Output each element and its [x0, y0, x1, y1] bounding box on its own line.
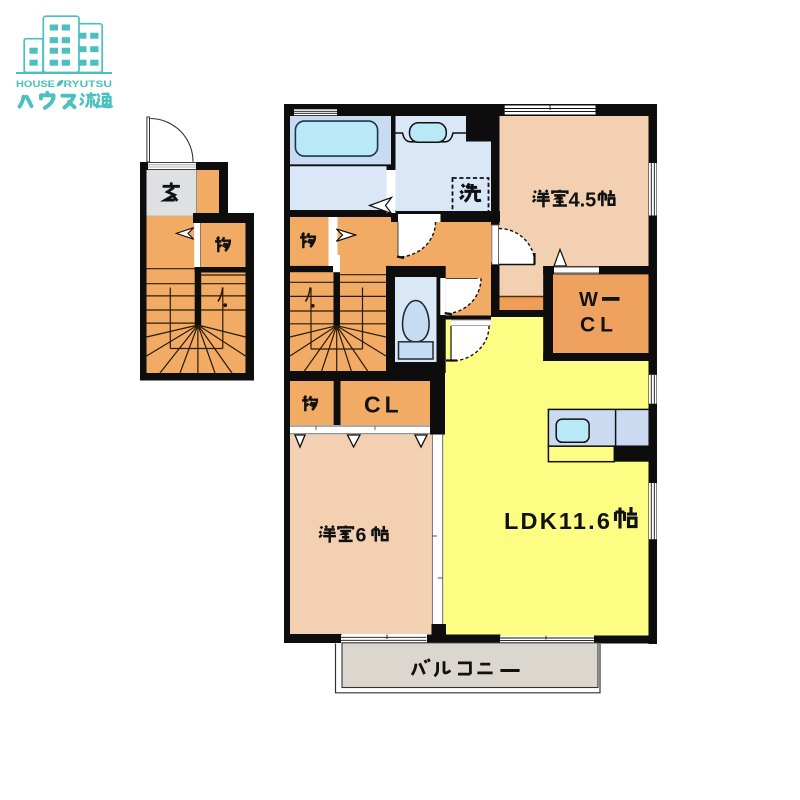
svg-text:RYUTSU: RYUTSU	[64, 79, 113, 90]
svg-text:CL: CL	[580, 314, 618, 337]
svg-text:6: 6	[356, 525, 367, 547]
svg-text:HOUSE: HOUSE	[16, 79, 55, 90]
svg-text:LDK11.6: LDK11.6	[504, 508, 612, 534]
svg-text:CL: CL	[364, 392, 403, 418]
svg-text:W: W	[579, 289, 598, 311]
svg-text:4.5: 4.5	[569, 190, 597, 212]
